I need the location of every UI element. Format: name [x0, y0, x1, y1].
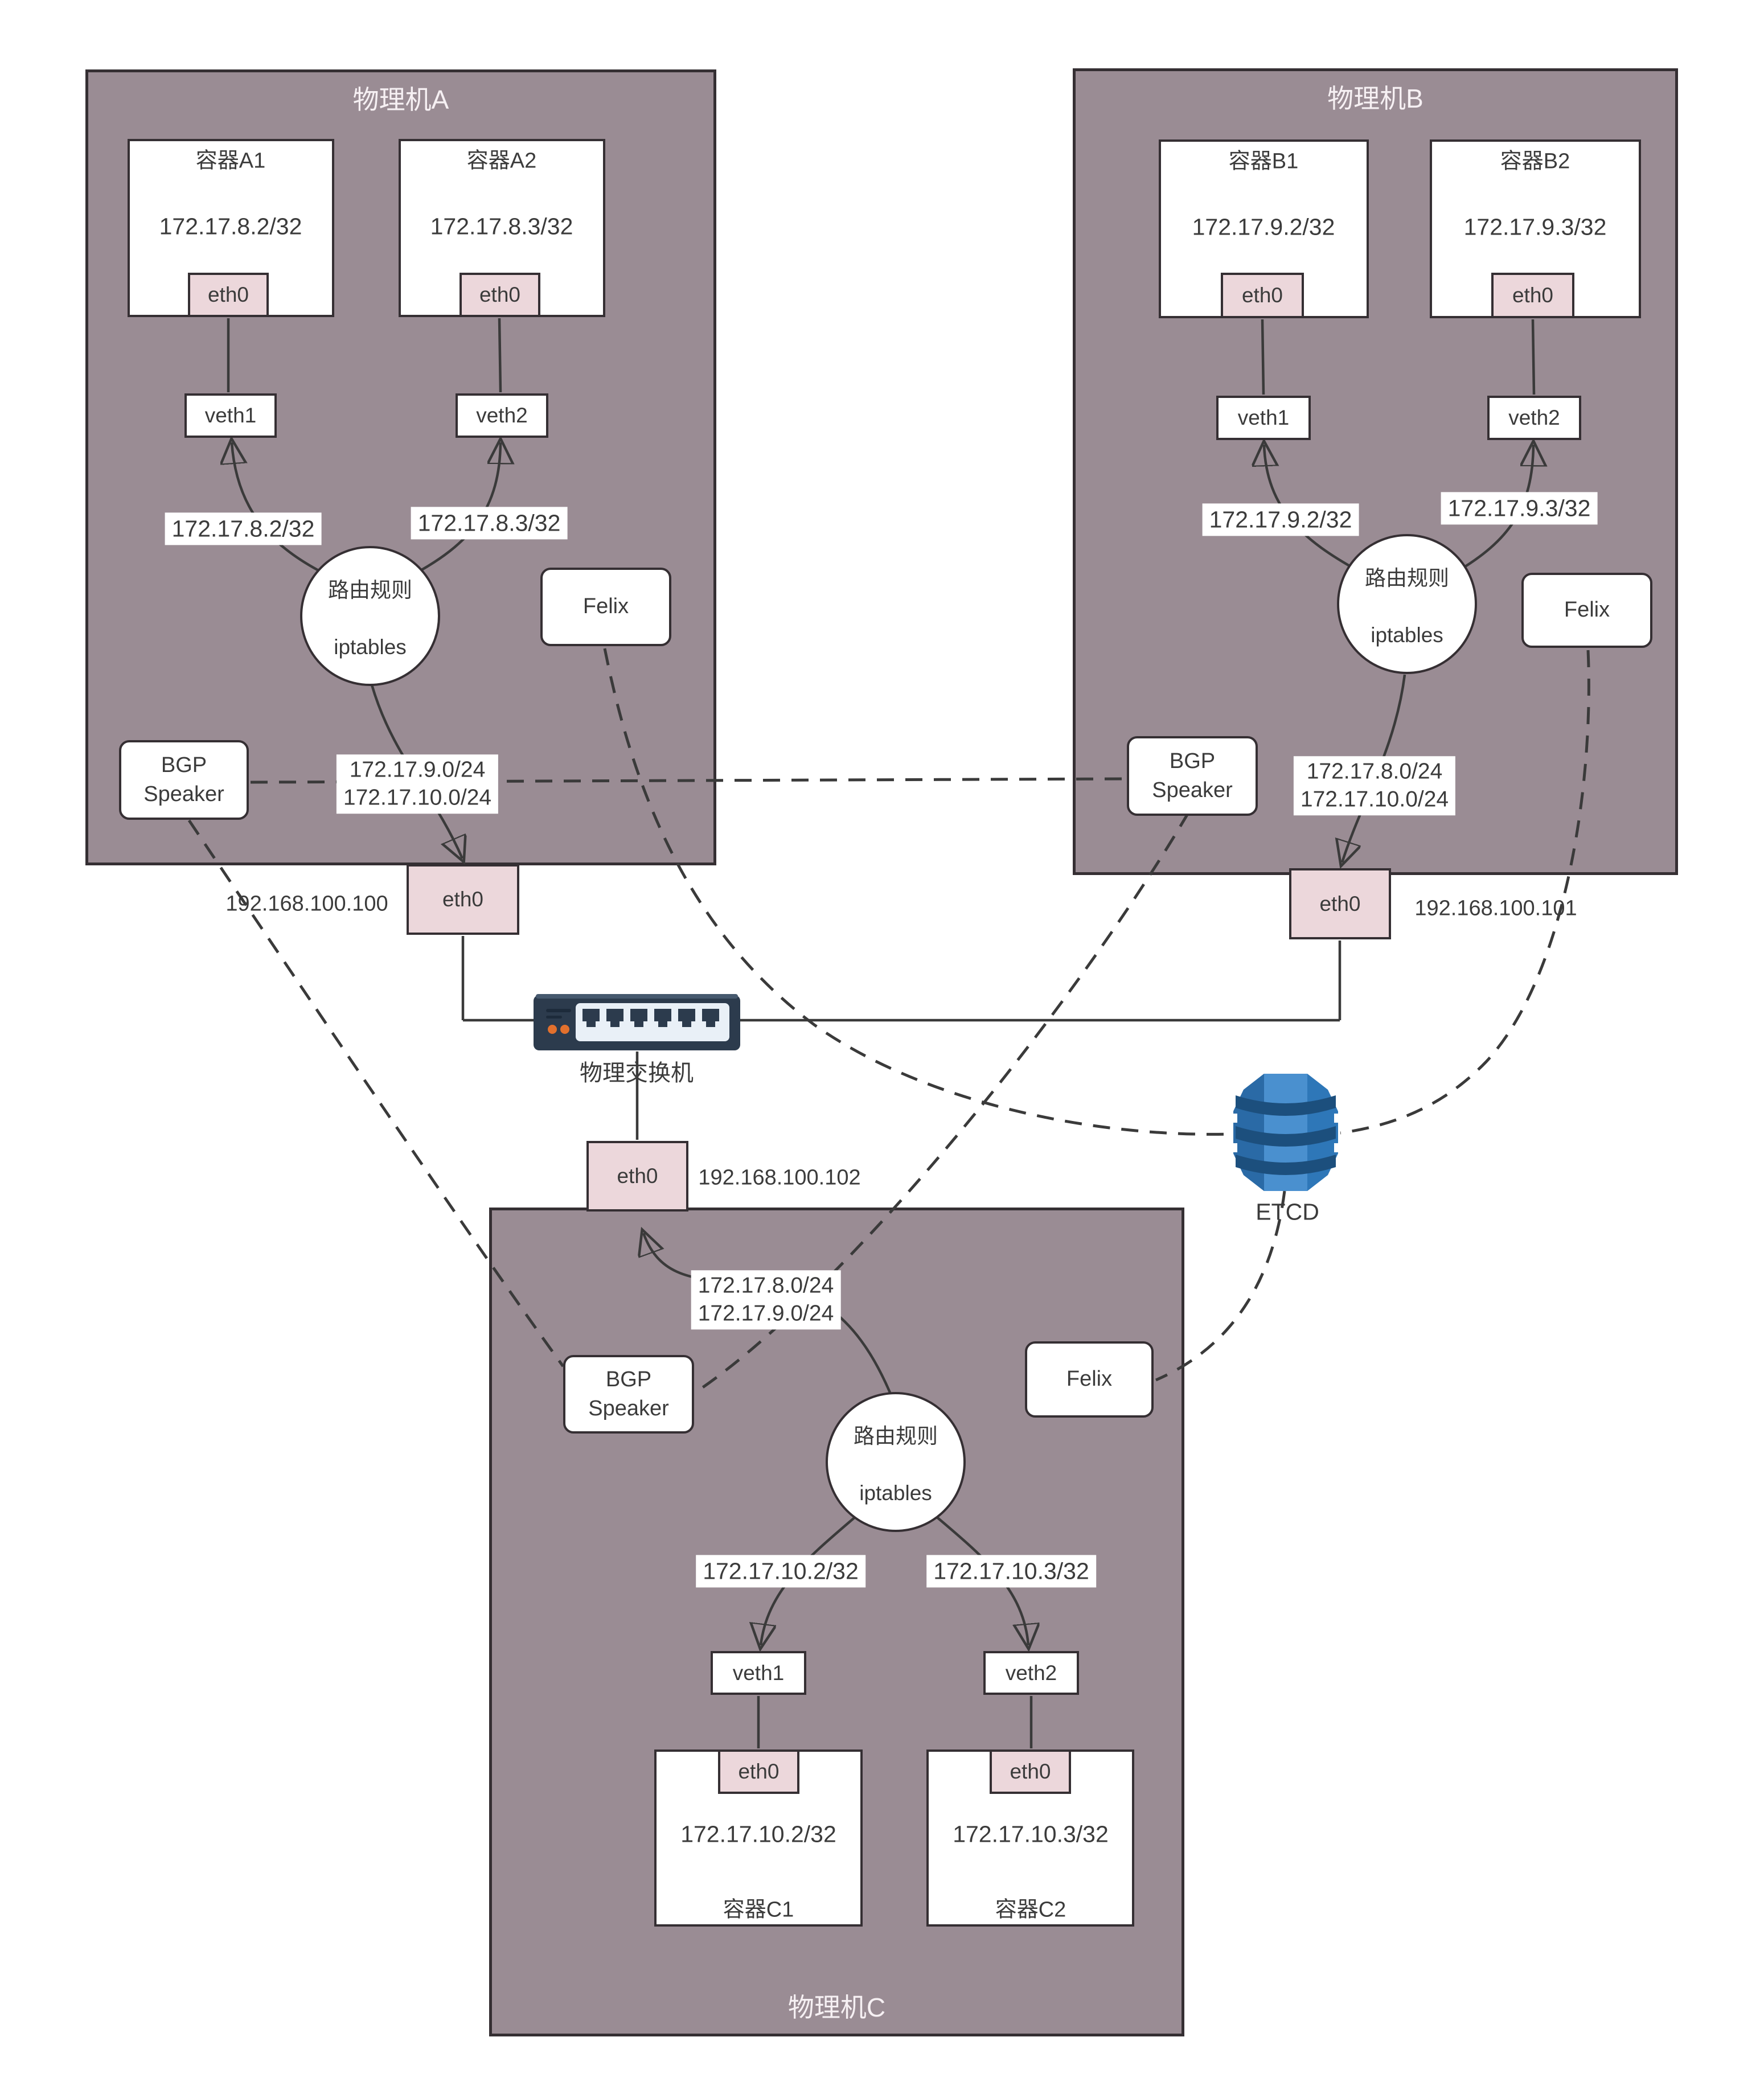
machine-c-title: 物理机C	[788, 1987, 885, 2024]
host-eth0-a: eth0	[407, 864, 519, 935]
route-label-a2: 172.17.8.3/32	[411, 507, 568, 539]
felix-c: Felix	[1025, 1341, 1154, 1418]
uplink-label-c: 172.17.8.0/24 172.17.9.0/24	[691, 1270, 841, 1329]
bgp-speaker-b: BGP Speaker	[1127, 736, 1258, 816]
machine-b-title: 物理机B	[1327, 78, 1423, 116]
route-label-c2: 172.17.10.3/32	[926, 1555, 1096, 1587]
route-circle-b-line2: iptables	[1371, 623, 1443, 647]
bgp-speaker-c: BGP Speaker	[563, 1355, 694, 1434]
veth1-c: veth1	[711, 1651, 806, 1695]
route-label-c1: 172.17.10.2/32	[696, 1555, 865, 1587]
route-circle-b: 路由规则 iptables	[1337, 534, 1477, 674]
host-ip-c: 192.168.100.102	[698, 1166, 860, 1190]
etcd-icon	[1233, 1074, 1338, 1191]
route-label-a1: 172.17.8.2/32	[165, 512, 322, 545]
container-a2-eth0: eth0	[460, 273, 540, 317]
physical-switch-icon	[534, 994, 740, 1050]
felix-a: Felix	[540, 568, 671, 646]
route-label-b2: 172.17.9.3/32	[1441, 492, 1598, 524]
container-b2-name: 容器B2	[1500, 143, 1570, 175]
route-circle-a-line2: iptables	[334, 635, 407, 659]
container-c1-ip: 172.17.10.2/32	[680, 1821, 836, 1848]
container-c2-name: 容器C2	[995, 1892, 1066, 1923]
host-ip-b: 192.168.100.101	[1414, 897, 1577, 921]
route-label-b1: 172.17.9.2/32	[1203, 503, 1359, 536]
machine-a-title: 物理机A	[353, 79, 449, 117]
container-a2-ip: 172.17.8.3/32	[430, 213, 573, 240]
container-c1-eth0: eth0	[718, 1750, 799, 1794]
veth2-b: veth2	[1487, 396, 1581, 440]
container-a1-eth0: eth0	[188, 273, 269, 317]
veth1-b: veth1	[1216, 396, 1311, 440]
container-b2-eth0: eth0	[1491, 273, 1574, 318]
container-b1-name: 容器B1	[1229, 143, 1298, 175]
route-circle-a-line1: 路由规则	[328, 573, 412, 603]
veth2-a: veth2	[456, 393, 548, 438]
veth1-a: veth1	[184, 393, 277, 438]
route-circle-b-line1: 路由规则	[1365, 561, 1449, 592]
container-c2-ip: 172.17.10.3/32	[953, 1821, 1109, 1848]
egress-label-a: 172.17.9.0/24 172.17.10.0/24	[337, 754, 498, 814]
bgp-speaker-a: BGP Speaker	[119, 740, 249, 820]
host-ip-a: 192.168.100.100	[225, 892, 388, 917]
route-circle-c: 路由规则 iptables	[826, 1392, 966, 1532]
egress-label-b: 172.17.8.0/24 172.17.10.0/24	[1294, 756, 1455, 815]
container-c1-name: 容器C1	[723, 1892, 794, 1923]
route-circle-c-line2: iptables	[859, 1481, 932, 1505]
container-a1-ip: 172.17.8.2/32	[159, 213, 302, 240]
route-circle-c-line1: 路由规则	[854, 1419, 938, 1449]
container-a2-name: 容器A2	[467, 143, 536, 174]
switch-label: 物理交换机	[580, 1054, 694, 1087]
container-b1-ip: 172.17.9.2/32	[1192, 214, 1335, 241]
host-eth0-c: eth0	[586, 1141, 688, 1212]
container-b1-eth0: eth0	[1221, 273, 1304, 318]
host-eth0-b: eth0	[1289, 868, 1391, 939]
route-circle-a: 路由规则 iptables	[300, 546, 440, 686]
container-a1-name: 容器A1	[196, 143, 265, 174]
etcd-label: ETCD	[1256, 1199, 1319, 1226]
diagram-canvas: 物理机A 物理机B 物理机C	[0, 0, 1764, 2078]
felix-b: Felix	[1521, 573, 1652, 648]
container-b2-ip: 172.17.9.3/32	[1464, 214, 1607, 241]
veth2-c: veth2	[983, 1651, 1079, 1695]
container-c2-eth0: eth0	[990, 1750, 1071, 1794]
